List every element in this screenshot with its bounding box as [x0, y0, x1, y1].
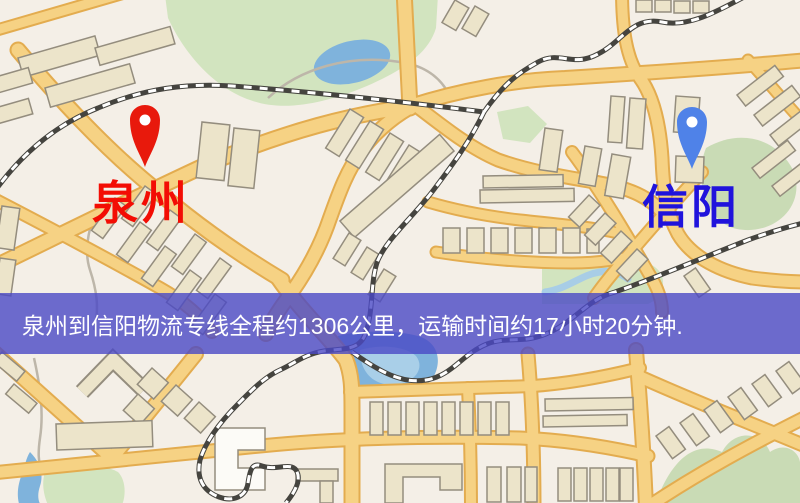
destination-pin-icon[interactable]: [675, 105, 709, 171]
map-canvas[interactable]: [0, 0, 800, 503]
logistics-route-map[interactable]: 泉州 信阳 泉州到信阳物流专线全程约1306公里，运输时间约17小时20分钟.: [0, 0, 800, 503]
origin-pin-shape: [130, 105, 160, 167]
destination-pin-hole: [687, 117, 698, 128]
origin-pin-icon[interactable]: [128, 103, 162, 169]
destination-city-label: 信阳: [642, 184, 740, 230]
destination-pin-shape: [677, 107, 707, 169]
route-banner-text: 泉州到信阳物流专线全程约1306公里，运输时间约17小时20分钟.: [22, 307, 683, 341]
origin-pin-hole: [140, 115, 151, 126]
route-banner: 泉州到信阳物流专线全程约1306公里，运输时间约17小时20分钟.: [0, 293, 800, 354]
origin-city-label: 泉州: [92, 180, 190, 226]
